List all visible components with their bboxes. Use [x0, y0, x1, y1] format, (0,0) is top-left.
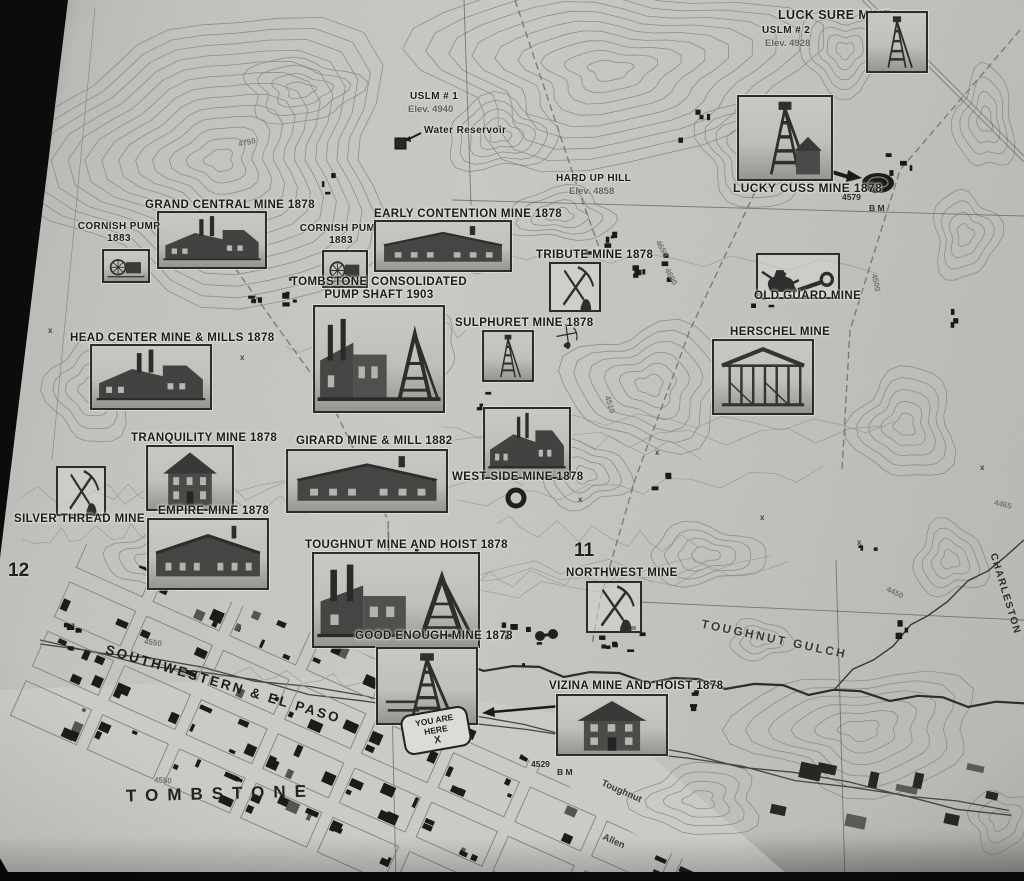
gulch-label: TOUGHNUT GULCH: [700, 617, 848, 662]
mine-label-tranquility: TRANQUILITY MINE 1878: [131, 432, 277, 444]
section-number-11: 11: [574, 540, 594, 562]
mine-label-tombstone-consolidated: TOMBSTONE CONSOLIDATED PUMP SHAFT 1903: [288, 276, 470, 302]
spot-elevation-4529: 4529: [531, 759, 550, 769]
mine-photo-grand-central: [157, 211, 267, 269]
mine-photo-cornish-pump-west: [102, 249, 150, 283]
landmark-water-reservoir: Water Reservoir: [424, 125, 506, 136]
mine-icon-tribute-crossed-picks-icon: [549, 262, 601, 312]
mine-label-old-guard: OLD GUARD MINE: [754, 290, 861, 302]
landmark-uslm1: USLM # 1: [410, 91, 458, 102]
mine-photo-lucky-cuss: [737, 95, 833, 181]
contour-label-4550-b: 4550: [154, 775, 172, 785]
benchmark-2: B M: [557, 767, 573, 777]
benchmark-1: B M: [869, 203, 885, 213]
railroad-label: SOUTHWESTERN & EL PASO: [104, 642, 343, 726]
mine-label-empire: EMPIRE MINE 1878: [158, 505, 269, 517]
map-paper: xxxxxxxx LUCK SURE MINE USLM # 2 Elev. 4…: [0, 0, 1024, 881]
mine-photo-tranquility: [146, 445, 234, 511]
contour-label-4450: 4450: [885, 585, 905, 601]
mine-photo-tombstone-consolidated: [313, 305, 445, 413]
contour-label-4500: 4500: [870, 273, 883, 292]
mine-label-girard: GIRARD MINE & MILL 1882: [296, 435, 453, 447]
mine-label-west-side: WEST SIDE MINE 1878: [452, 471, 584, 483]
landmark-uslm2: USLM # 2: [762, 25, 810, 36]
mine-photo-luck-sure: [866, 11, 928, 73]
mine-label-toughnut: TOUGHNUT MINE AND HOIST 1878: [305, 539, 508, 551]
mine-photo-empire: [147, 518, 269, 590]
mine-photo-vizina: [556, 694, 668, 756]
mine-label-good-enough: GOOD ENOUGH MINE 1878: [355, 630, 513, 642]
mine-label-herschel: HERSCHEL MINE: [730, 326, 830, 338]
mine-label-head-center: HEAD CENTER MINE & MILLS 1878: [70, 332, 275, 344]
section-number-12: 12: [8, 560, 29, 582]
mine-label-northwest: NORTHWEST MINE: [566, 567, 678, 579]
mine-label-early-contention: EARLY CONTENTION MINE 1878: [374, 208, 562, 220]
photo-of-map: { "map_type": "historic-mining-topograph…: [0, 0, 1024, 881]
town-name-label: TOMBSTONE: [126, 782, 315, 807]
landmark-uslm2-elev: Elev. 4928: [765, 38, 810, 49]
contour-label-4465: 4465: [993, 498, 1012, 511]
mine-icon-silver-thread-crossed-picks-icon: [56, 466, 106, 516]
mine-photo-head-center: [90, 344, 212, 410]
mine-photo-sulphuret: [482, 330, 534, 382]
contour-label-4600: 4600: [663, 267, 679, 287]
spot-elevation-4579: 4579: [842, 192, 861, 202]
mine-photo-girard: [286, 449, 448, 513]
contour-label-4750: 4750: [237, 136, 256, 149]
mine-label-vizina: VIZINA MINE AND HOIST 1878: [549, 680, 723, 692]
mine-label-sulphuret: SULPHURET MINE 1878: [455, 317, 594, 329]
contour-label-4650: 4650: [654, 239, 670, 259]
landmark-uslm1-elev: Elev. 4940: [408, 104, 453, 115]
mine-photo-early-contention: [374, 220, 512, 272]
landmark-hard-up-hill-elev: Elev. 4858: [569, 186, 614, 197]
mine-label-tribute: TRIBUTE MINE 1878: [536, 249, 653, 261]
landmark-hard-up-hill: HARD UP HILL: [556, 173, 631, 184]
mine-label-grand-central: GRAND CENTRAL MINE 1878: [145, 199, 315, 211]
mine-label-cornish-pump-west: CORNISH PUMP 1883: [76, 221, 162, 244]
mine-photo-west-side: [483, 407, 571, 479]
mine-label-cornish-pump-east: CORNISH PUMP 1883: [298, 223, 384, 246]
contour-label-4550-a: 4550: [143, 637, 162, 648]
edge-road-label: CHARLESTON: [987, 552, 1022, 636]
mine-label-silver-thread: SILVER THREAD MINE: [14, 513, 145, 525]
contour-label-4510: 4510: [603, 395, 617, 415]
mine-icon-northwest-crossed-picks-icon: [586, 581, 642, 633]
street-allen: Allen: [601, 832, 627, 851]
mine-photo-herschel: [712, 339, 814, 415]
street-toughnut: Toughnut: [600, 778, 644, 806]
